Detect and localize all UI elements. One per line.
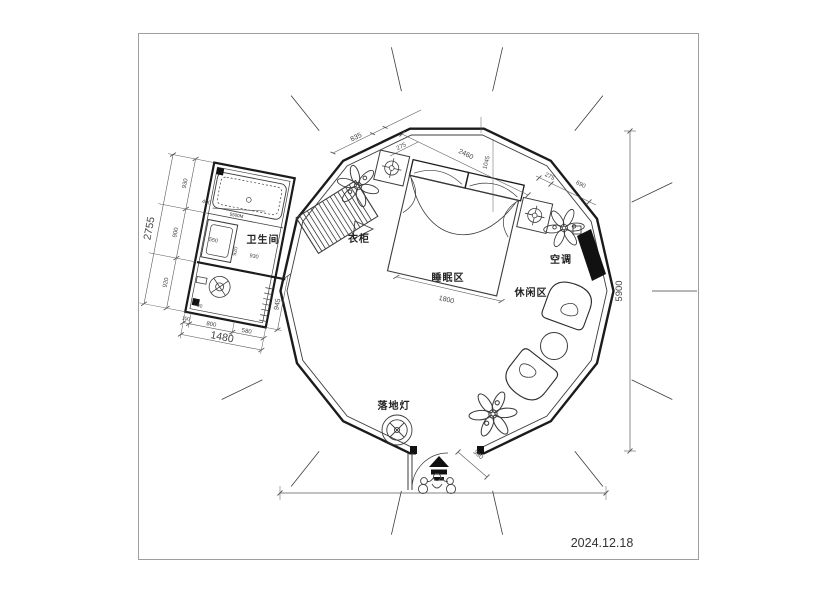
entrance-opening	[416, 443, 478, 456]
floor-drain	[216, 167, 224, 175]
door-post-left	[410, 446, 417, 454]
label-air-conditioner: 空调	[550, 253, 572, 266]
label-bathroom: 卫生间	[247, 233, 280, 246]
label-sleeping-area: 睡眠区	[432, 271, 465, 284]
dim-5900: 5900	[614, 280, 625, 301]
label-wardrobe: 衣柜	[348, 232, 370, 245]
label-floor-lamp: 落地灯	[378, 399, 411, 412]
floor-lamp-icon	[382, 415, 412, 445]
label-leisure-area: 休闲区	[514, 286, 548, 299]
floorplan-drawing: 1800	[0, 0, 837, 592]
floorplan-page: 1800	[0, 0, 837, 592]
drawing-date: 2024.12.18	[571, 536, 634, 550]
